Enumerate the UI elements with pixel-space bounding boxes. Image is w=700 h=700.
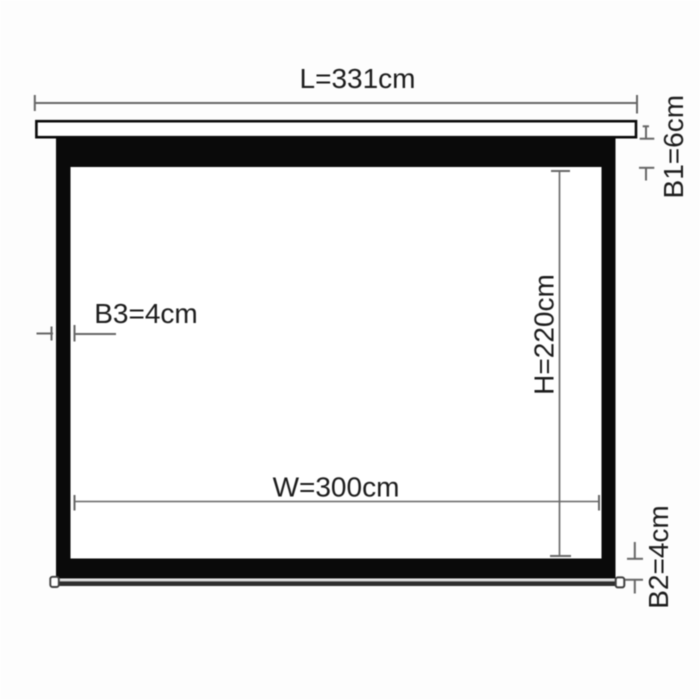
svg-text:L=331cm: L=331cm <box>300 63 416 94</box>
svg-text:W=300cm: W=300cm <box>273 472 400 503</box>
svg-text:B1=6cm: B1=6cm <box>658 95 689 199</box>
svg-text:H=220cm: H=220cm <box>529 274 560 395</box>
svg-text:B3=4cm: B3=4cm <box>94 298 198 329</box>
svg-text:B2=4cm: B2=4cm <box>643 505 674 609</box>
